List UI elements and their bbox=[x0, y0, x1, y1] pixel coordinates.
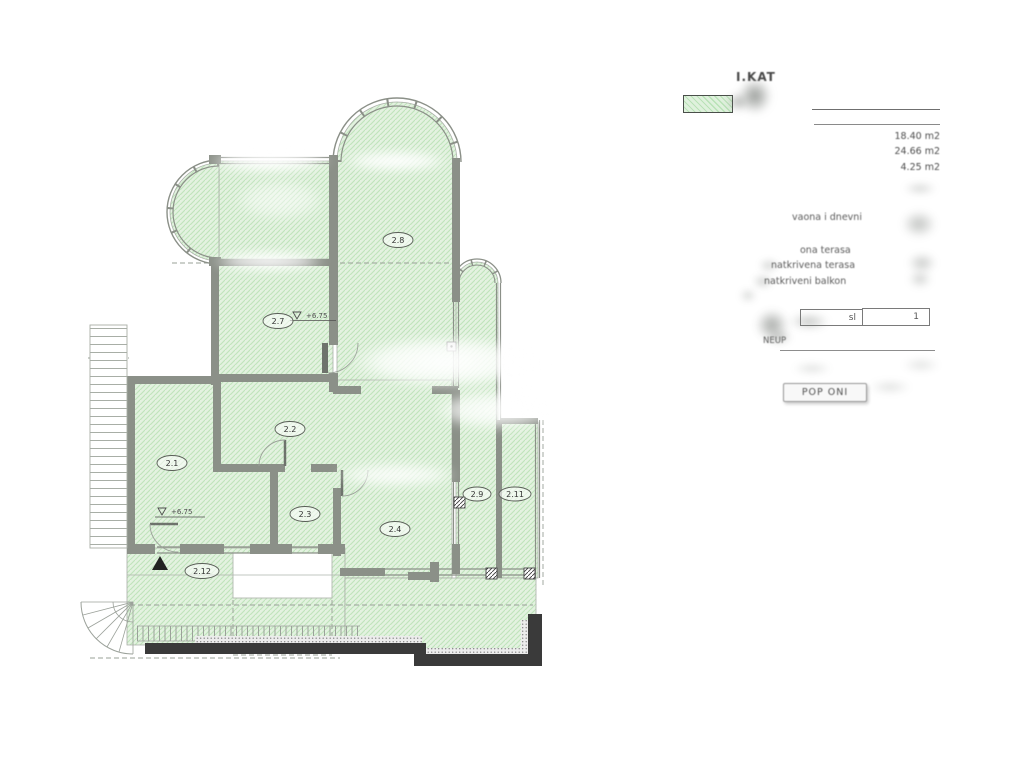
legend-color-swatch bbox=[683, 95, 733, 113]
svg-text:2.11: 2.11 bbox=[506, 490, 524, 499]
level-value: +6.75 bbox=[306, 312, 327, 320]
room-label-2-8: 2.8 bbox=[383, 233, 413, 248]
room-label-2-2: 2.2 bbox=[275, 422, 305, 437]
svg-text:2.9: 2.9 bbox=[471, 490, 484, 499]
room-label-2-1: 2.1 bbox=[157, 456, 187, 471]
legend-field-left-value: sl bbox=[849, 313, 856, 323]
floor-plan-drawing: +6.75 +6.75 2.1 2.2 2.3 2.4 2.7 2.8 2.9 bbox=[0, 0, 1024, 768]
svg-text:2.7: 2.7 bbox=[272, 317, 285, 326]
legend-field-left: sl bbox=[800, 309, 871, 326]
room-label-2-3: 2.3 bbox=[290, 507, 320, 522]
svg-text:2.2: 2.2 bbox=[284, 425, 297, 434]
svg-text:2.4: 2.4 bbox=[389, 525, 402, 534]
legend-neto-label: NEUP bbox=[763, 336, 786, 346]
svg-text:2.3: 2.3 bbox=[299, 510, 312, 519]
legend-room-row: natkrivena terasa bbox=[771, 260, 855, 271]
legend-title: I.KAT bbox=[736, 70, 776, 84]
legend-rule-1 bbox=[812, 109, 940, 110]
legend-field-right: 1 bbox=[862, 308, 930, 326]
legend-room-row: ona terasa bbox=[800, 245, 851, 256]
legend-area-value: 4.25 m2 bbox=[858, 162, 940, 173]
svg-text:2.8: 2.8 bbox=[392, 236, 405, 245]
legend-rule-2 bbox=[814, 124, 940, 125]
left-staircase bbox=[90, 325, 127, 548]
level-value: +6.75 bbox=[171, 508, 192, 516]
svg-text:2.12: 2.12 bbox=[193, 567, 211, 576]
legend-room-row: vaona i dnevni bbox=[792, 212, 862, 223]
room-label-2-7: 2.7 bbox=[263, 314, 293, 329]
legend-room-row: natkriveni balkon bbox=[764, 276, 846, 287]
scanned-floorplan-page: +6.75 +6.75 2.1 2.2 2.3 2.4 2.7 2.8 2.9 bbox=[0, 0, 1024, 768]
room-label-2-9: 2.9 bbox=[463, 487, 491, 501]
svg-text:2.1: 2.1 bbox=[166, 459, 179, 468]
room-label-2-4: 2.4 bbox=[380, 522, 410, 537]
legend-field-right-value: 1 bbox=[913, 312, 919, 322]
legend-button[interactable]: POP ONI bbox=[783, 383, 867, 402]
legend-area-value: 24.66 m2 bbox=[858, 146, 940, 157]
legend-neto-rule bbox=[780, 350, 935, 351]
legend-area-value: 18.40 m2 bbox=[858, 131, 940, 142]
terrace-void-opening bbox=[233, 553, 332, 598]
room-label-2-12: 2.12 bbox=[185, 564, 219, 579]
room-label-2-11: 2.11 bbox=[499, 487, 531, 501]
